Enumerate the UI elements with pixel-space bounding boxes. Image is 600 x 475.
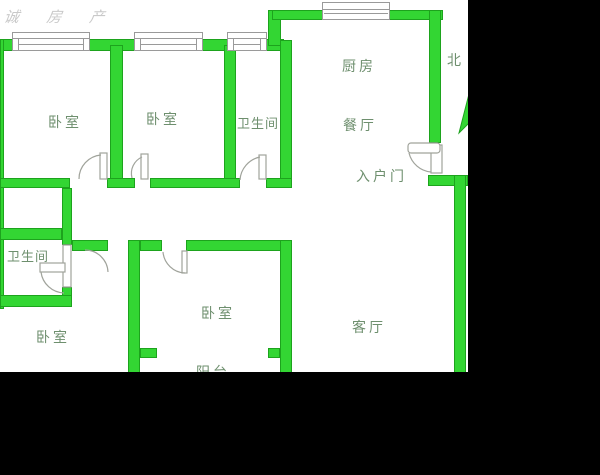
floor-plan: 卧室 卧室 卫生间 厨房 餐厅 入户门 北 卫生间 卧室 卧室 客厅 阳台 诚 …: [0, 0, 600, 475]
room-label-bathroom-left: 卫生间: [7, 246, 49, 265]
room-label-bedroom-top-left: 卧室: [48, 112, 82, 132]
door-arc: [41, 272, 64, 293]
door-arc: [79, 155, 101, 179]
door-leaf: [259, 155, 266, 179]
room-label-entrance: 入户门: [356, 166, 407, 186]
door-arc: [240, 157, 260, 180]
room-label-bathroom-top: 卫生间: [237, 113, 279, 132]
door-leaf: [100, 153, 107, 179]
door-arc: [409, 153, 431, 172]
room-label-bedroom-top-mid: 卧室: [146, 109, 180, 129]
watermark: 诚 房 产: [3, 6, 118, 27]
room-label-living: 客厅: [352, 317, 386, 337]
door-arc: [85, 250, 108, 272]
room-label-dining: 餐厅: [343, 115, 377, 135]
room-label-kitchen: 厨房: [342, 56, 376, 76]
room-label-bedroom-bottom-mid: 卧室: [201, 303, 235, 323]
black-mask-bottom: [0, 372, 600, 475]
door-leaf: [141, 154, 148, 179]
door-leaf: [182, 251, 187, 273]
room-label-bedroom-bottom-left: 卧室: [36, 327, 70, 347]
door-leaf: [408, 143, 440, 153]
north-label: 北: [447, 50, 464, 70]
